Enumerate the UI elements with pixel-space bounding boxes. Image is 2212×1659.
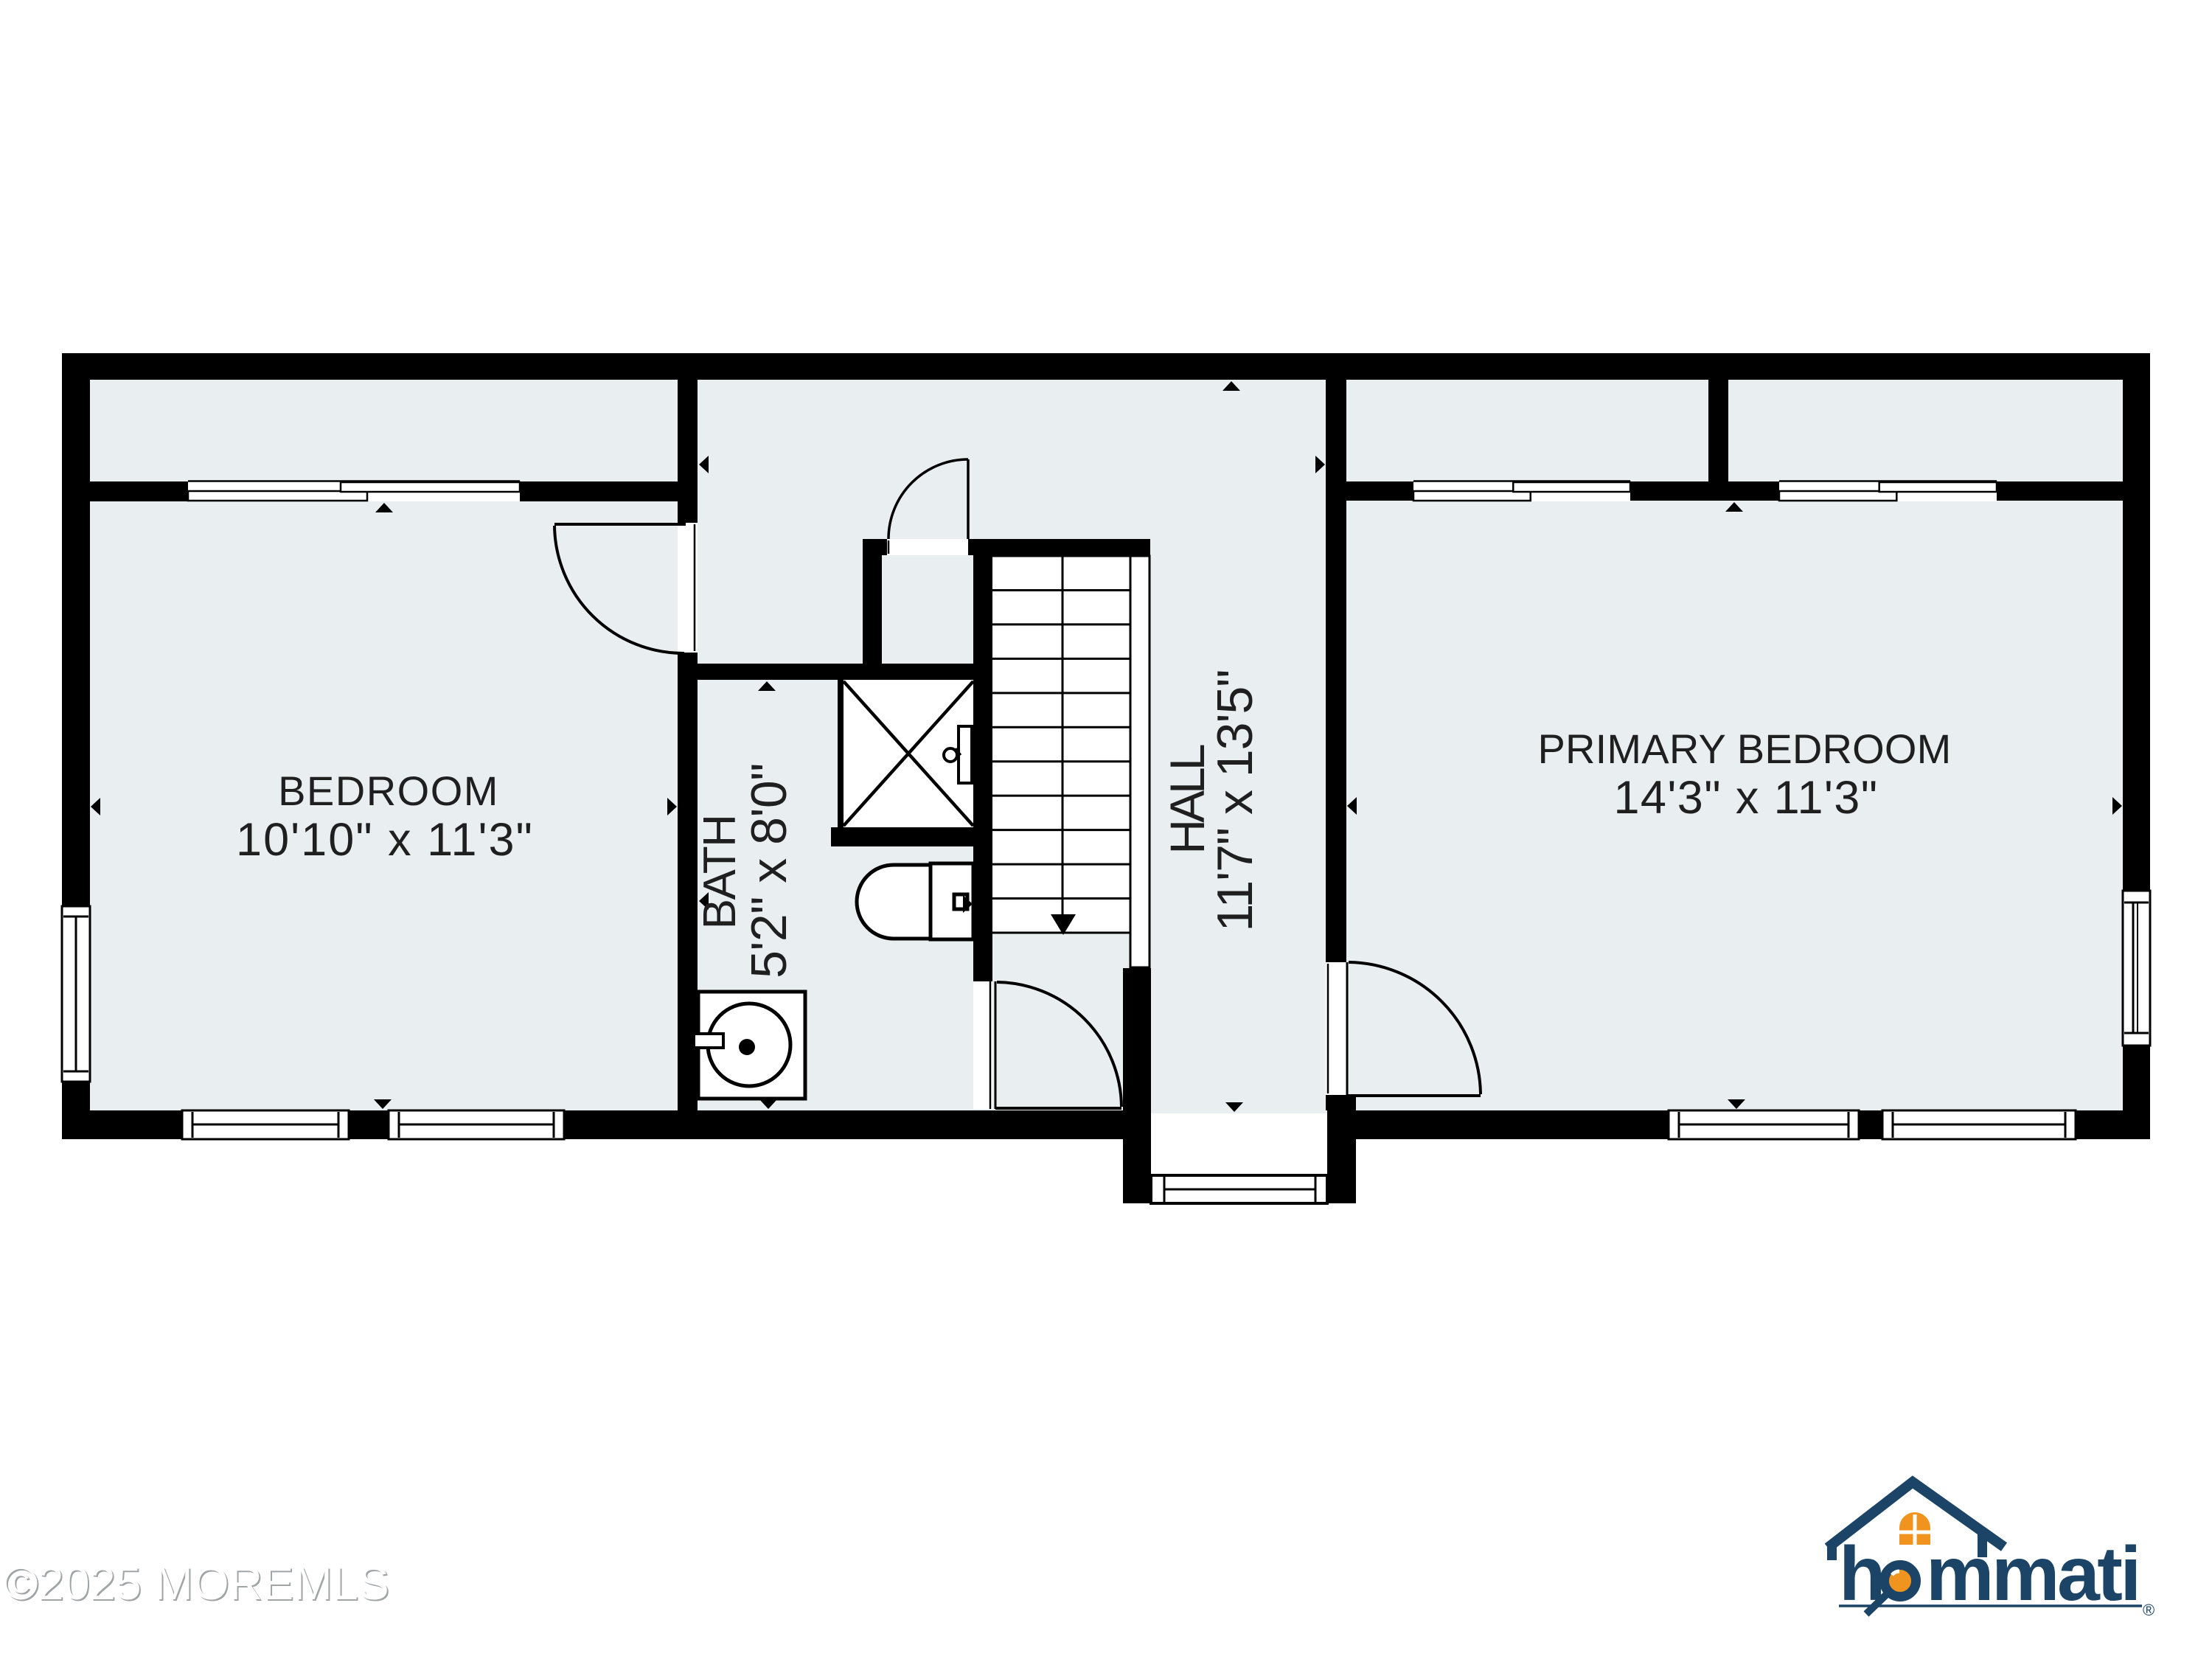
- svg-text:BATH: BATH: [695, 815, 745, 930]
- svg-text:HALL: HALL: [1160, 745, 1214, 854]
- svg-text:mmati: mmati: [1926, 1531, 2139, 1617]
- svg-text:©2025 MOREMLS: ©2025 MOREMLS: [4, 1558, 389, 1610]
- svg-text:14'3" x 11'3": 14'3" x 11'3": [1613, 772, 1878, 824]
- svg-text:10'10" x 11'3": 10'10" x 11'3": [236, 814, 534, 866]
- svg-text:11'7" x 13'5": 11'7" x 13'5": [1207, 670, 1263, 932]
- svg-text:BEDROOM: BEDROOM: [278, 768, 499, 814]
- svg-text:®: ®: [2143, 1601, 2154, 1619]
- svg-text:PRIMARY BEDROOM: PRIMARY BEDROOM: [1537, 726, 1951, 772]
- svg-text:5'2" x 8'0": 5'2" x 8'0": [741, 763, 797, 978]
